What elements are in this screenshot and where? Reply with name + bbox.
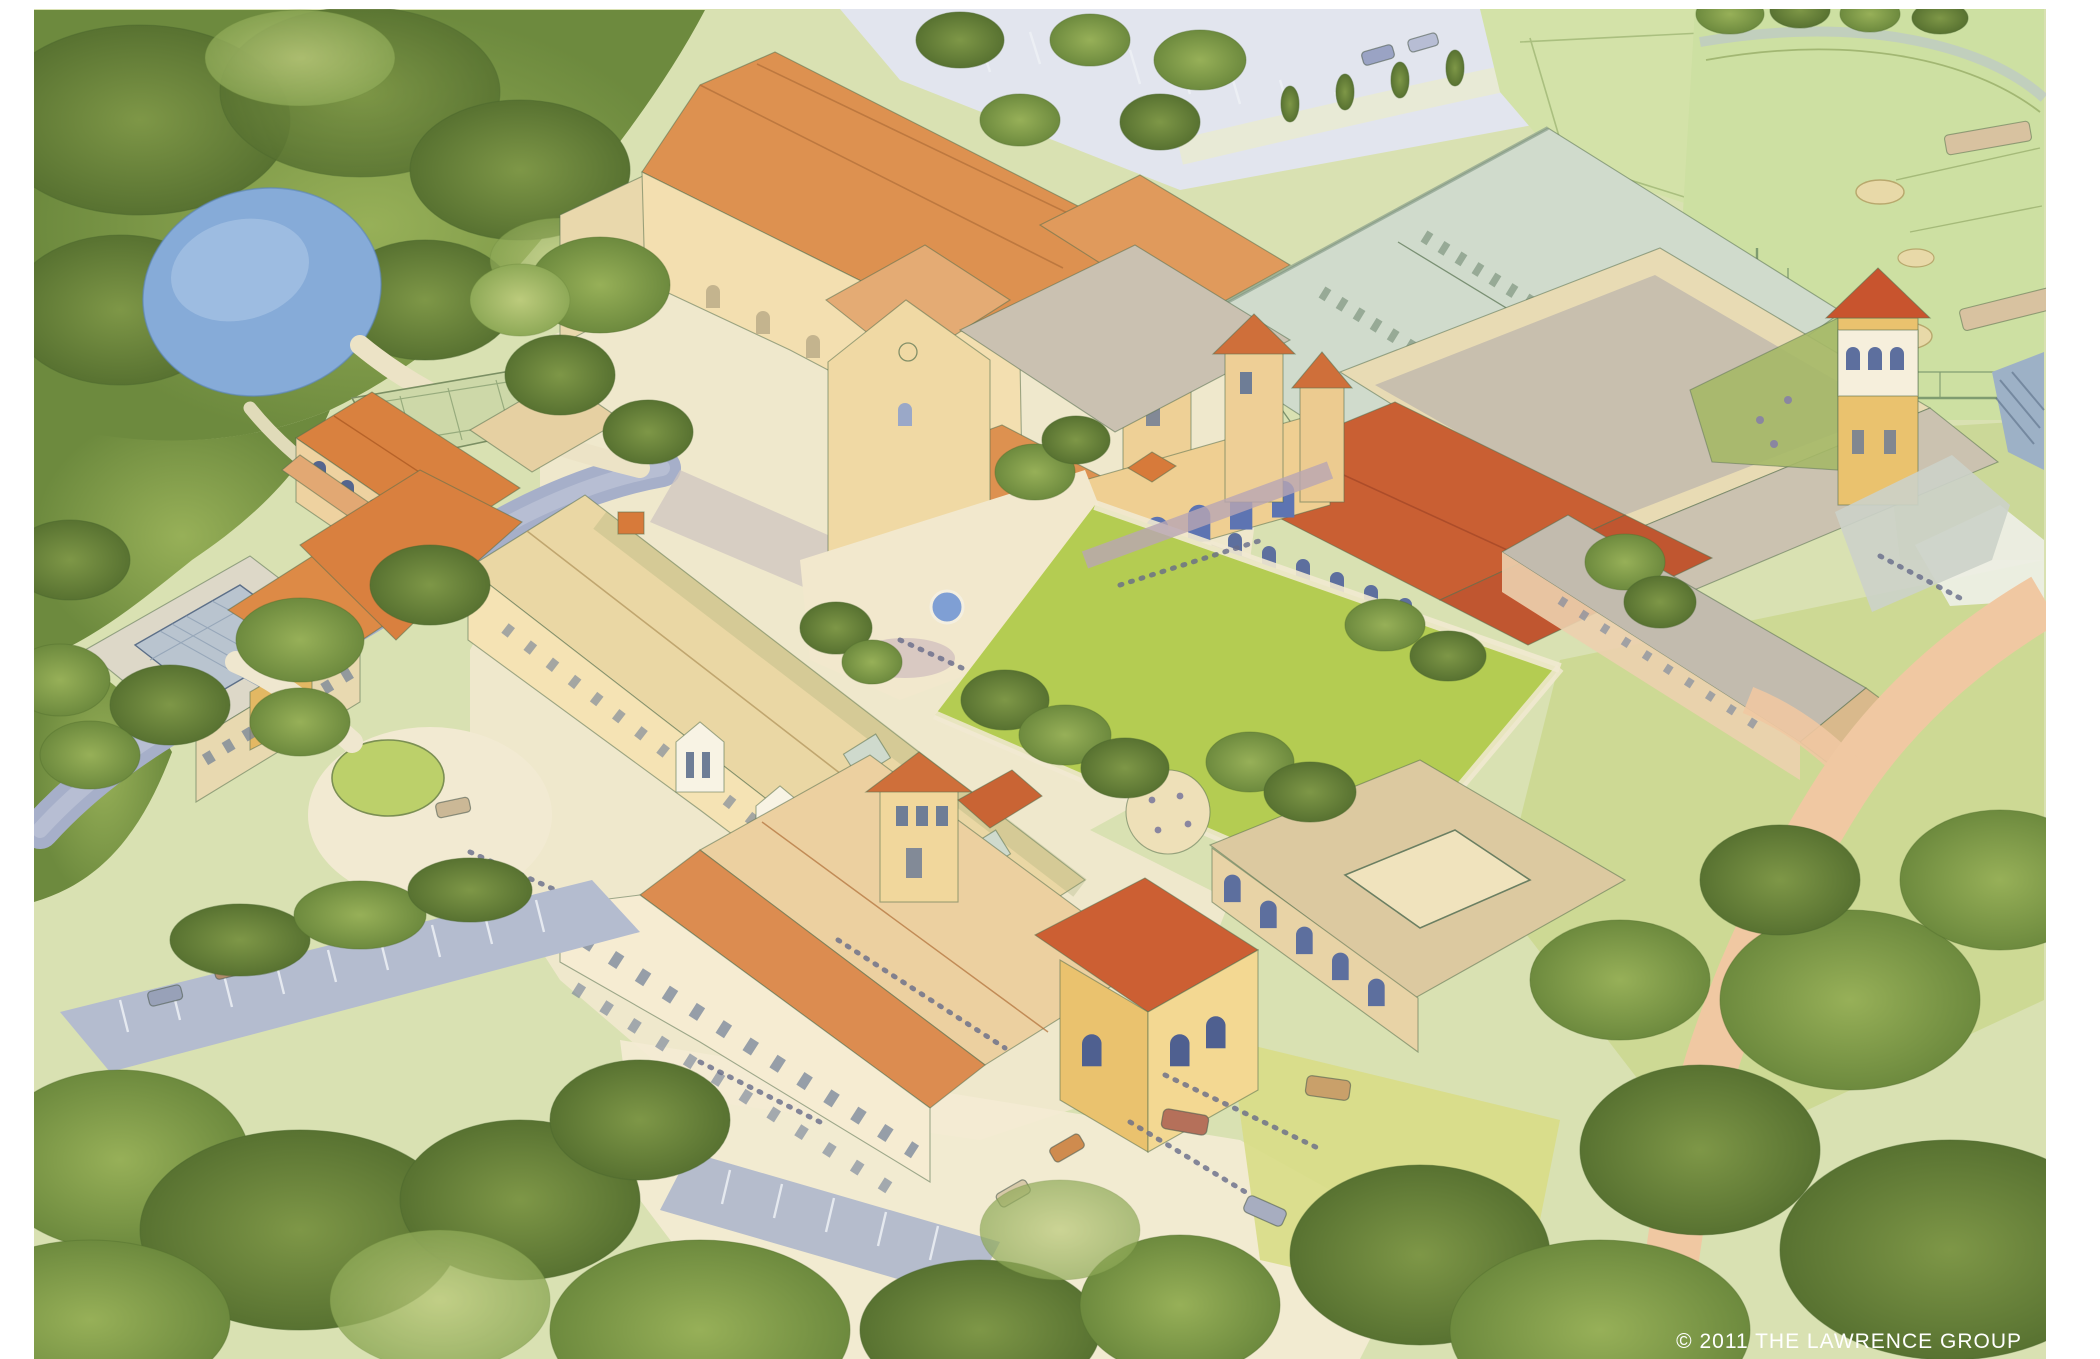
corner-pavilion — [1826, 268, 1930, 505]
campus-rendering: © 2011 THE LAWRENCE GROUP — [0, 0, 2100, 1359]
watercolor-scene: © 2011 THE LAWRENCE GROUP — [0, 0, 2100, 1359]
fountain — [931, 591, 963, 623]
copyright-credit: © 2011 THE LAWRENCE GROUP — [1676, 1330, 2022, 1353]
